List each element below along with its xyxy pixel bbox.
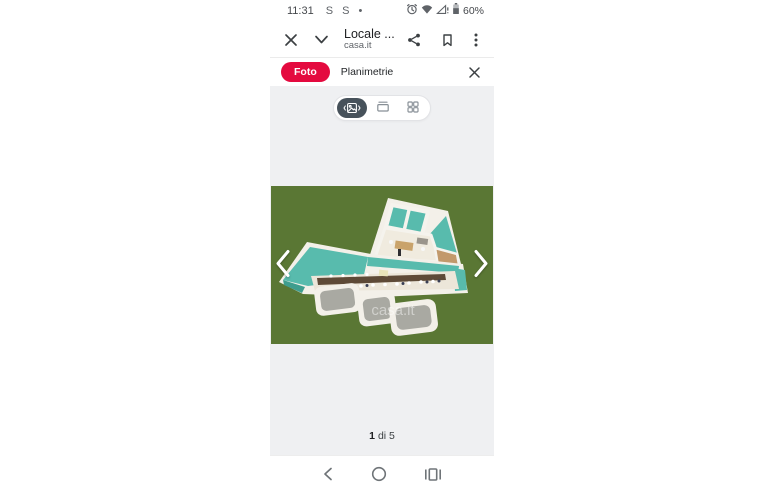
app-header: Locale ... casa.it: [270, 22, 494, 58]
stack-view-button[interactable]: [368, 95, 398, 121]
floorplan-image[interactable]: casa.it: [271, 186, 493, 344]
view-mode-toggle: [333, 95, 431, 121]
close-icon[interactable]: [284, 33, 298, 47]
android-navigation-bar: [270, 455, 494, 492]
alarm-icon: [406, 2, 418, 20]
battery-percent: 60%: [463, 5, 484, 17]
carousel-view-button[interactable]: [336, 95, 368, 121]
back-icon[interactable]: [322, 466, 334, 482]
page-title-block: Locale ... casa.it: [344, 27, 396, 52]
chevron-down-icon[interactable]: [314, 34, 329, 45]
page-subtitle: casa.it: [344, 41, 396, 52]
pagination-total: di 5: [378, 430, 395, 442]
clock-time: 11:31: [287, 5, 314, 17]
share-icon[interactable]: [407, 33, 421, 47]
gallery-area: casa.it 1di 5: [270, 86, 494, 455]
kebab-menu-icon[interactable]: [474, 33, 478, 47]
tab-planimetrie[interactable]: Planimetrie: [341, 66, 394, 78]
tab-foto[interactable]: Foto: [281, 62, 330, 82]
page-title: Locale ...: [344, 27, 396, 41]
gallery-close-icon[interactable]: [468, 66, 481, 79]
header-actions: [407, 33, 478, 47]
wifi-icon: [421, 2, 433, 20]
signal-icon: [436, 2, 449, 20]
phone-screen: 11:31 S S •: [270, 0, 494, 492]
recent-apps-icon[interactable]: [424, 467, 442, 482]
gallery-tab-bar: Foto Planimetrie: [270, 58, 494, 86]
battery-icon: [452, 2, 460, 20]
next-image-arrow[interactable]: [473, 249, 489, 282]
home-icon[interactable]: [371, 466, 387, 482]
notification-icons: S S •: [326, 5, 366, 17]
status-icons: 60%: [406, 2, 484, 20]
grid-view-icon: [407, 101, 419, 116]
pagination-current: 1: [369, 430, 375, 442]
image-pagination: 1di 5: [369, 430, 395, 442]
previous-image-arrow[interactable]: [275, 249, 291, 282]
bookmark-icon[interactable]: [441, 33, 454, 47]
status-bar: 11:31 S S •: [270, 0, 494, 22]
stack-view-icon: [376, 100, 390, 116]
grid-view-button[interactable]: [398, 95, 428, 121]
watermark-text: casa.it: [371, 302, 415, 319]
floorplan-3d-render: casa.it: [271, 186, 493, 344]
carousel-view-icon: [337, 98, 367, 118]
